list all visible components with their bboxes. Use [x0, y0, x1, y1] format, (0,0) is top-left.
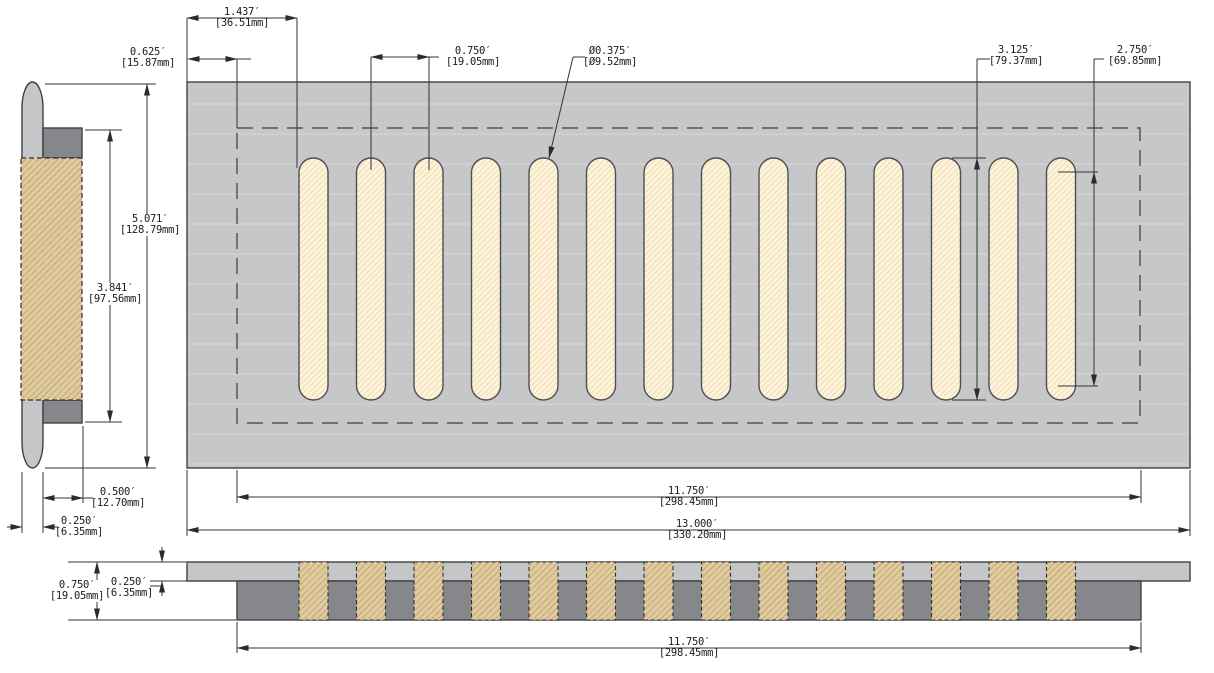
profile-slot-13: [989, 562, 1018, 620]
profile-slot-8: [702, 562, 731, 620]
dim-value-mm: [79.37mm]: [978, 56, 1054, 67]
dim-value-mm: [36.51mm]: [200, 18, 284, 29]
dim-faceplate-thickness-label: 0.250′ [6.35mm]: [95, 577, 163, 599]
vent-slot-13: [989, 158, 1018, 400]
profile-slot-11: [874, 562, 903, 620]
vent-slot-7: [644, 158, 673, 400]
dim-overall-height-label: 5.071′ [128.79mm]: [114, 214, 186, 236]
dim-value-mm: [97.56mm]: [84, 294, 146, 305]
dim-value-mm: [69.85mm]: [1096, 56, 1174, 67]
dim-value-mm: [6.35mm]: [95, 588, 163, 599]
vent-slot-8: [702, 158, 731, 400]
dim-value-mm: [298.45mm]: [639, 497, 739, 508]
profile-slot-2: [357, 562, 386, 620]
vent-slot-12: [932, 158, 961, 400]
vent-slot-11: [874, 158, 903, 400]
dim-value-mm: [Ø9.52mm]: [570, 57, 650, 68]
dim-duct-depth-label: 0.500′ [12.70mm]: [80, 487, 156, 509]
vent-slot-2: [357, 158, 386, 400]
dim-slot-height-label: 3.125′ [79.37mm]: [978, 45, 1054, 67]
dim-value-mm: [298.45mm]: [639, 648, 739, 659]
profile-slot-5: [529, 562, 558, 620]
profile-slot-10: [817, 562, 846, 620]
vent-slot-5: [529, 158, 558, 400]
profile-slot-12: [932, 562, 961, 620]
side-opening-hatch: [21, 158, 82, 400]
profile-slot-1: [299, 562, 328, 620]
profile-slot-6: [587, 562, 616, 620]
side-view: [21, 82, 82, 468]
profile-faceplate: [187, 562, 1190, 581]
dim-value-mm: [128.79mm]: [114, 225, 186, 236]
side-duct-bottom: [43, 400, 82, 423]
vent-slot-3: [414, 158, 443, 400]
dim-slot-dia-label: Ø0.375′ [Ø9.52mm]: [570, 46, 650, 68]
faceplate-texture: [189, 83, 1189, 467]
dim-value-mm: [15.87mm]: [110, 58, 186, 69]
dim-duct-width-label: 11.750′ [298.45mm]: [639, 486, 739, 508]
top-view: [187, 82, 1190, 468]
technical-drawing-canvas: 1.437′ [36.51mm] 0.625′ [15.87mm] 0.750′…: [0, 0, 1214, 673]
dim-slot-pitch-label: 0.750′ [19.05mm]: [435, 46, 511, 68]
profile-slot-9: [759, 562, 788, 620]
dim-value-mm: [330.20mm]: [647, 530, 747, 541]
dim-inner-height-lines: [85, 130, 122, 422]
dim-inner-height-label: 3.841′ [97.56mm]: [84, 283, 146, 305]
profile-slot-14: [1047, 562, 1076, 620]
dim-flange-thickness-label: 0.250′ [6.35mm]: [45, 516, 113, 538]
dim-edge-margin-label: 0.625′ [15.87mm]: [110, 47, 186, 69]
dim-overall-width-label: 13.000′ [330.20mm]: [647, 519, 747, 541]
profile-view: [187, 562, 1190, 620]
dim-value-mm: [6.35mm]: [45, 527, 113, 538]
profile-slot-3: [414, 562, 443, 620]
vent-slot-4: [472, 158, 501, 400]
vent-slot-9: [759, 158, 788, 400]
dim-value-mm: [19.05mm]: [435, 57, 511, 68]
side-duct-top: [43, 128, 82, 158]
vent-slot-1: [299, 158, 328, 400]
vent-slot-6: [587, 158, 616, 400]
profile-slot-4: [472, 562, 501, 620]
profile-slot-7: [644, 562, 673, 620]
vent-slot-10: [817, 158, 846, 400]
dim-slot-offset-label: 1.437′ [36.51mm]: [200, 7, 284, 29]
drawing-linework: [0, 0, 1214, 673]
dim-slot-straight-label: 2.750′ [69.85mm]: [1096, 45, 1174, 67]
dim-value-mm: [12.70mm]: [80, 498, 156, 509]
vent-slot-14: [1047, 158, 1076, 400]
dim-profile-duct-width-label: 11.750′ [298.45mm]: [639, 637, 739, 659]
